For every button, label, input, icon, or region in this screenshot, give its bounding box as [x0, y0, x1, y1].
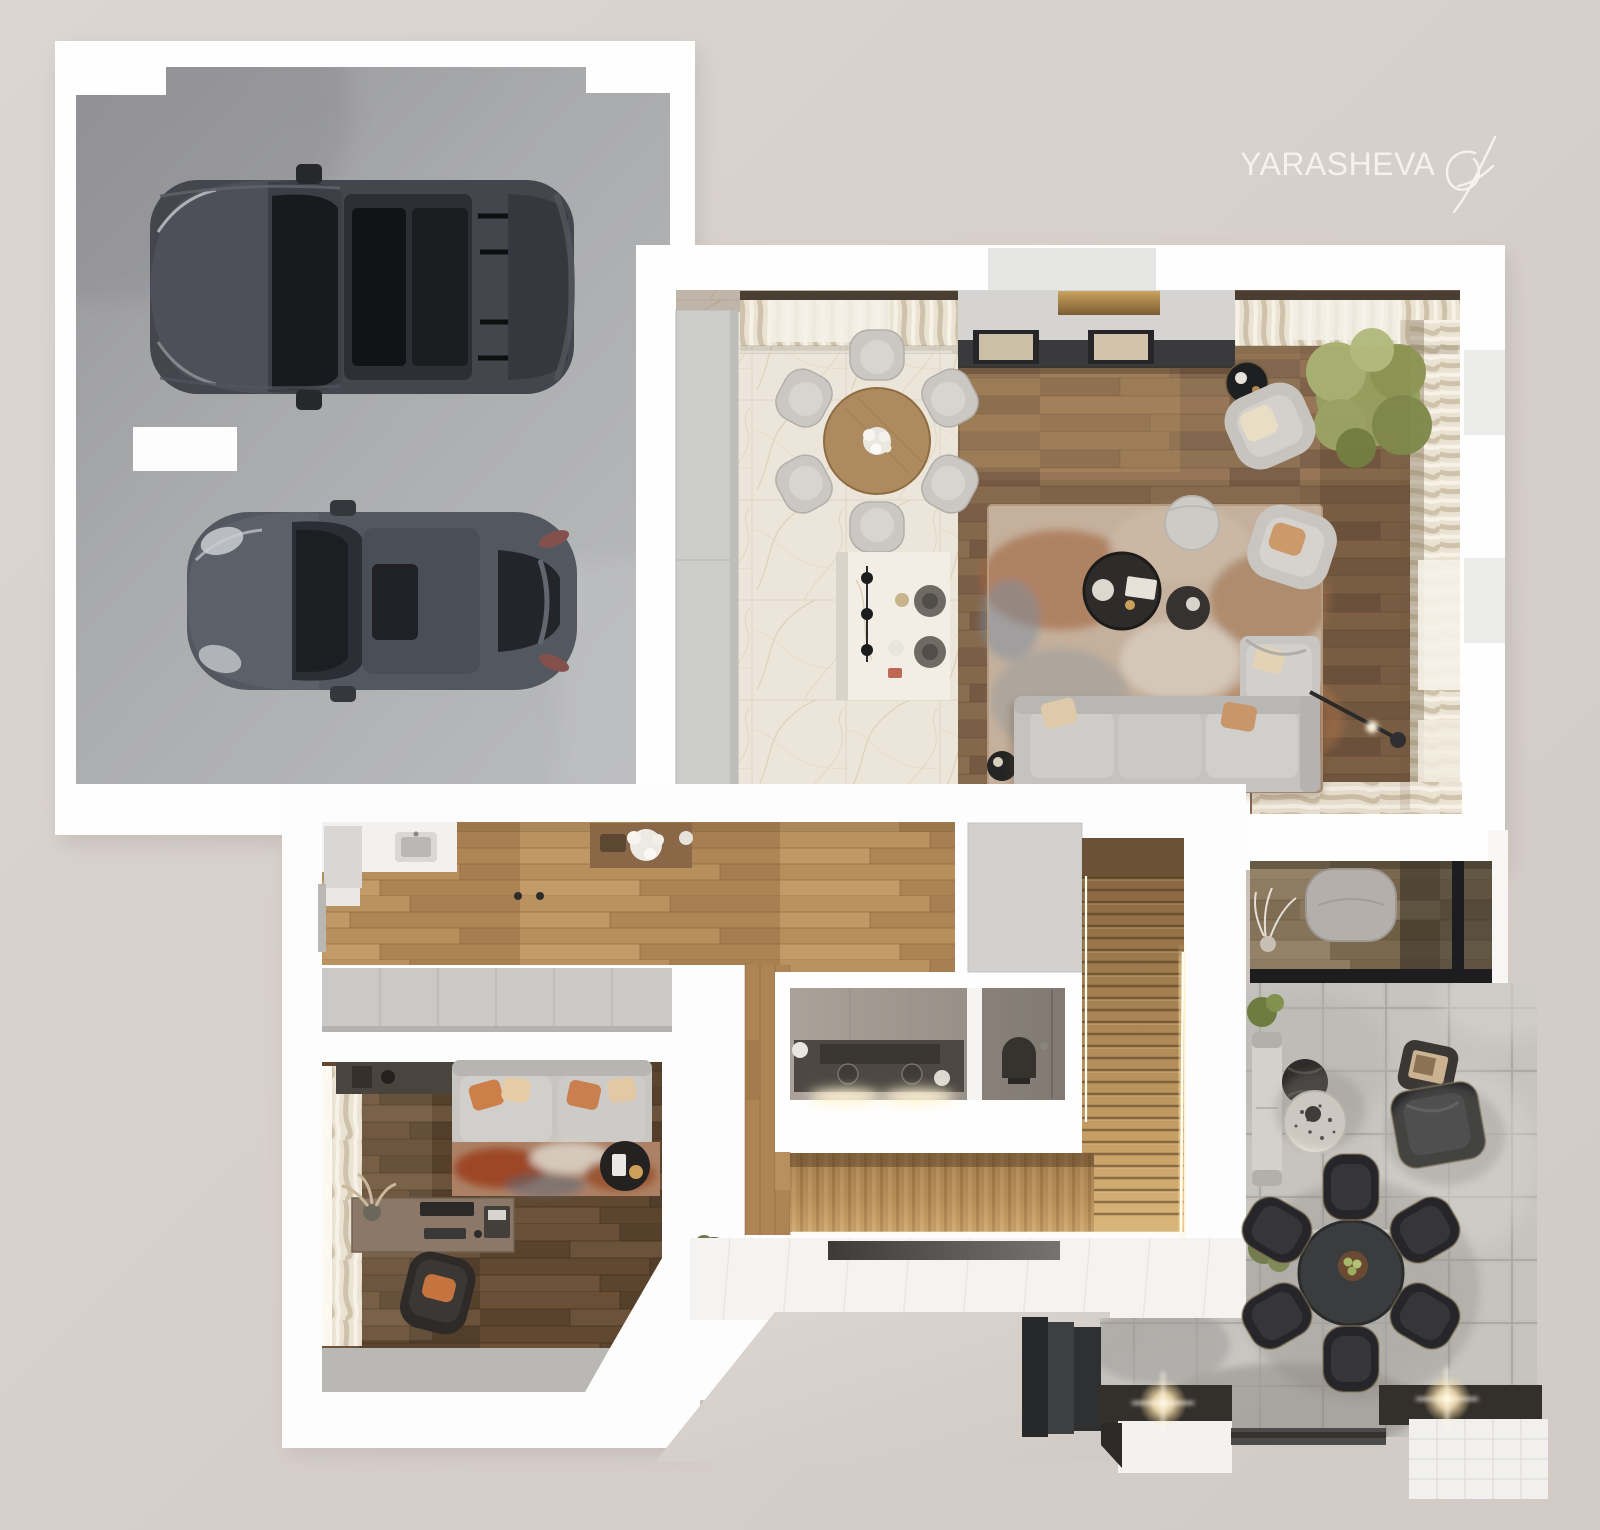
svg-text:YARASHEVA: YARASHEVA: [1240, 146, 1436, 182]
